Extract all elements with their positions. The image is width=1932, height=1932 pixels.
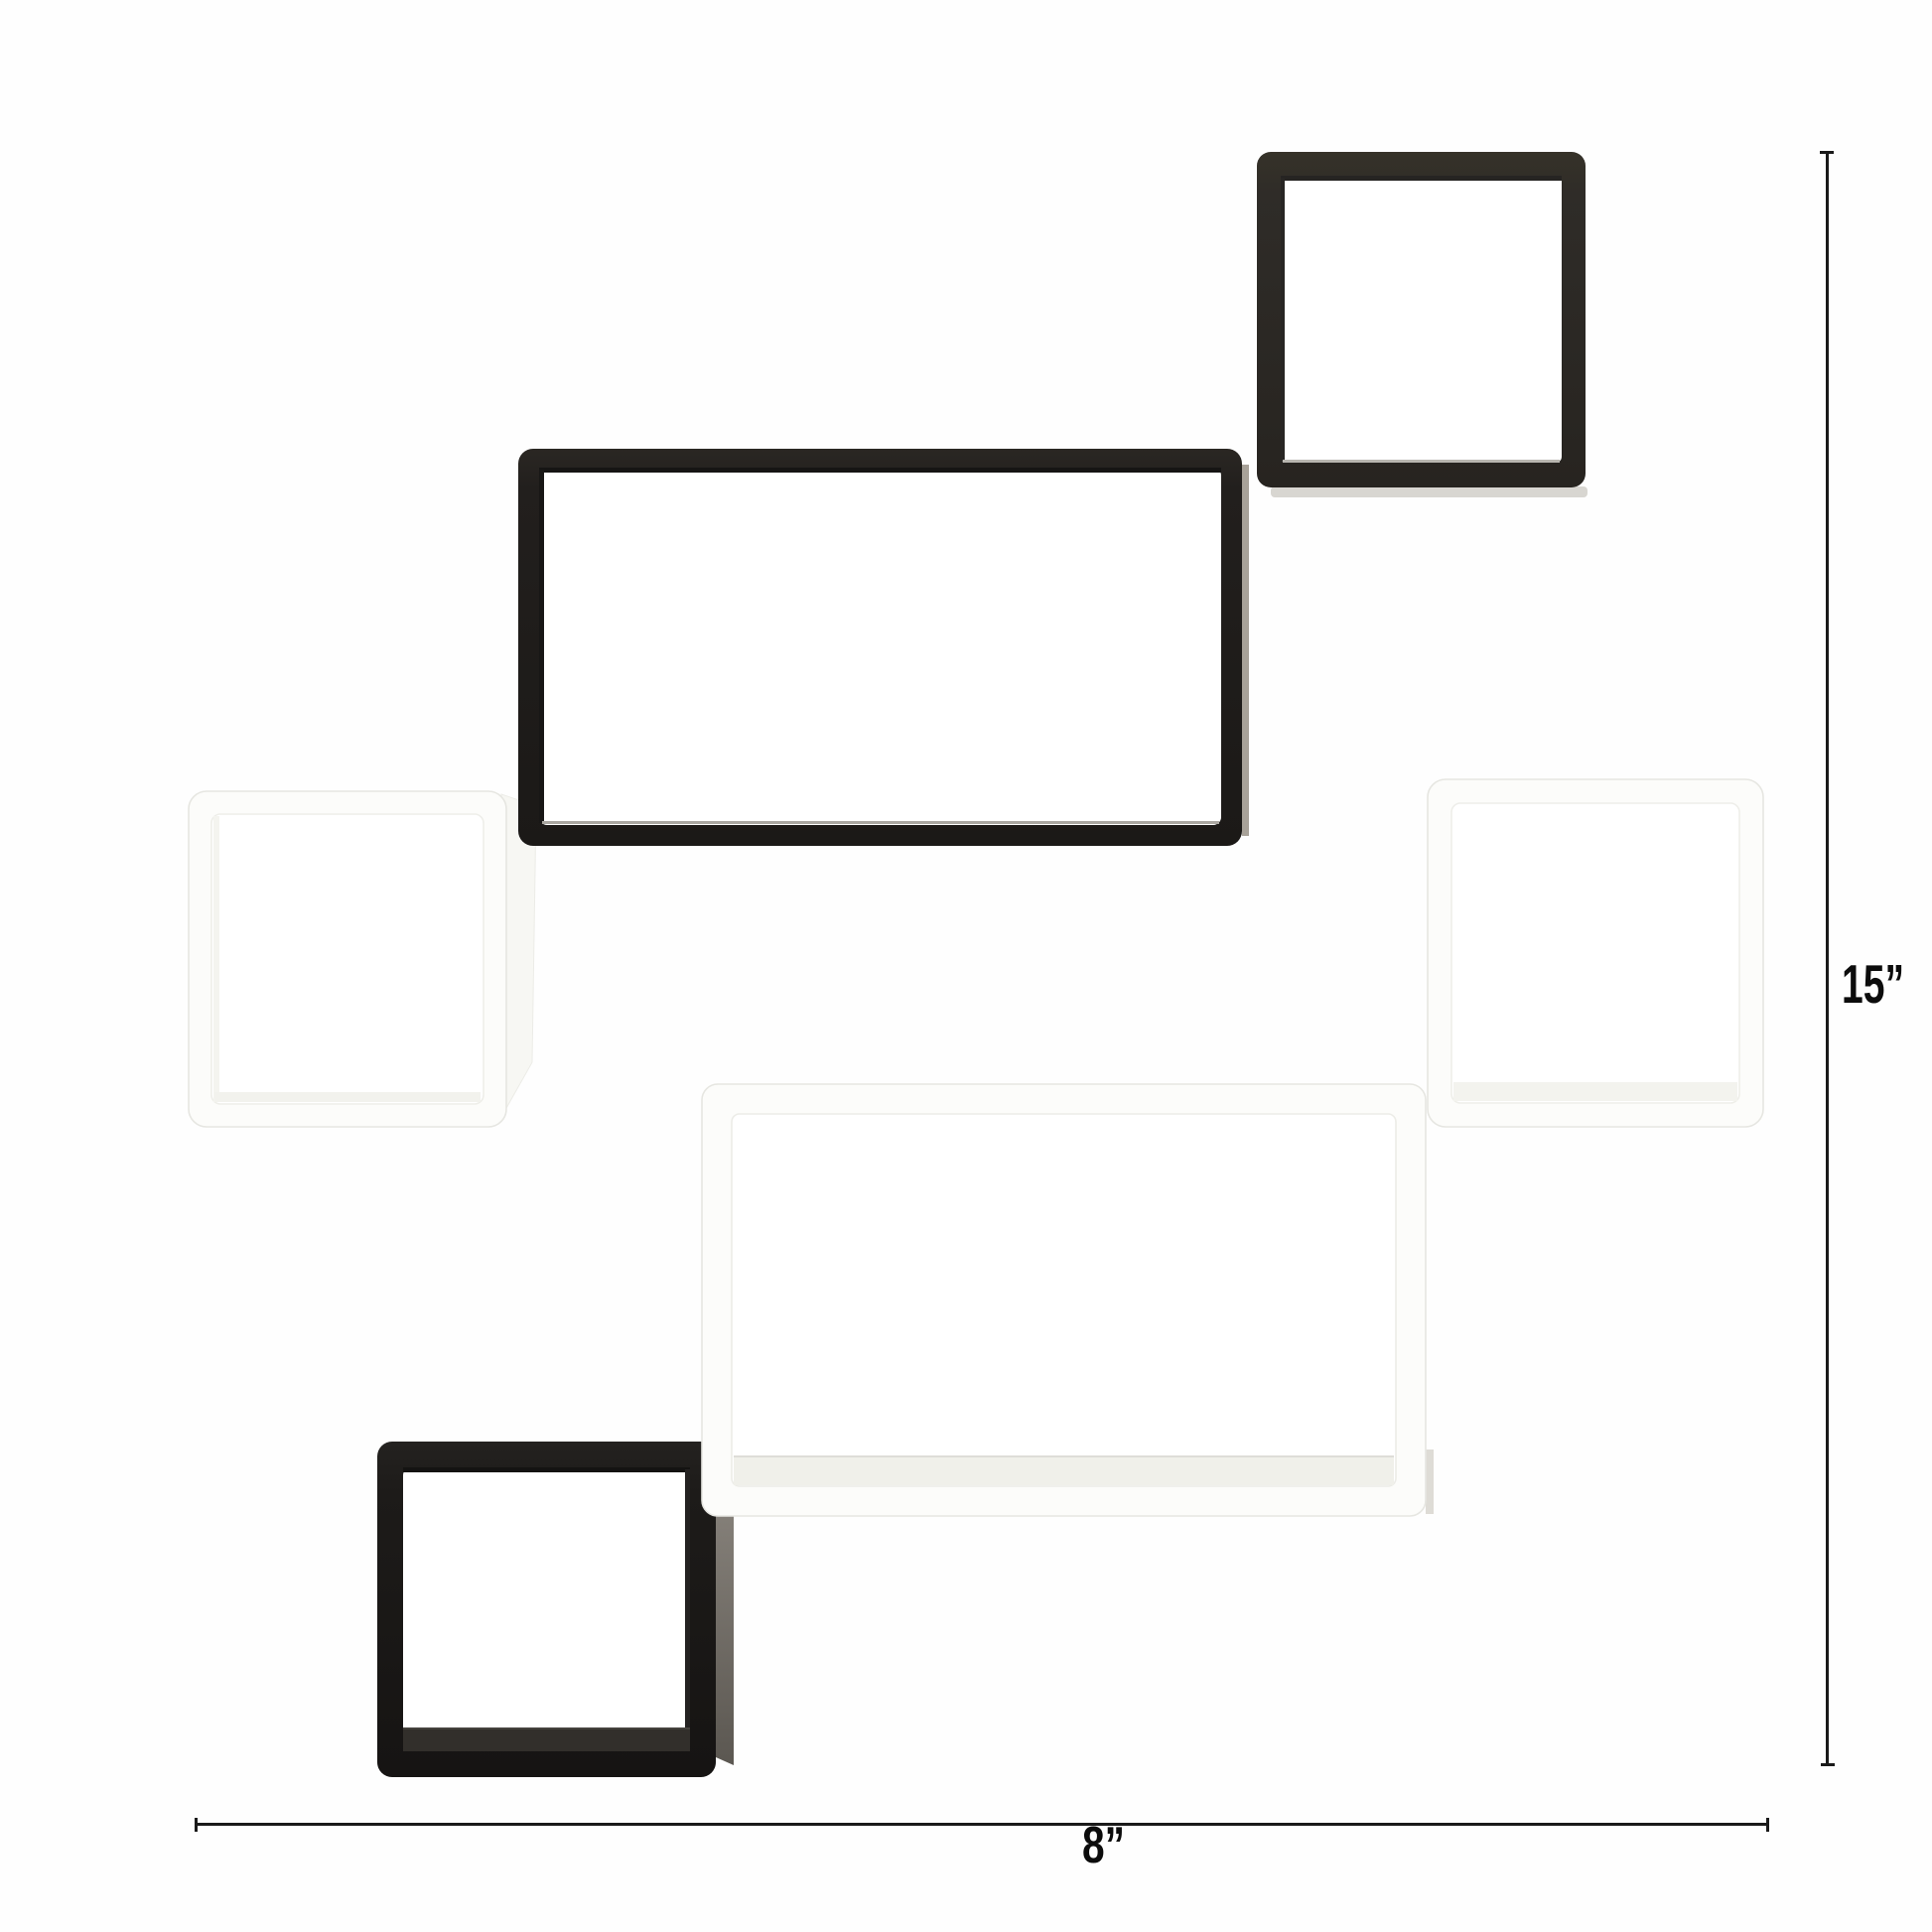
- svg-text:15”: 15”: [1842, 953, 1904, 1015]
- svg-text:8”: 8”: [1082, 1817, 1125, 1874]
